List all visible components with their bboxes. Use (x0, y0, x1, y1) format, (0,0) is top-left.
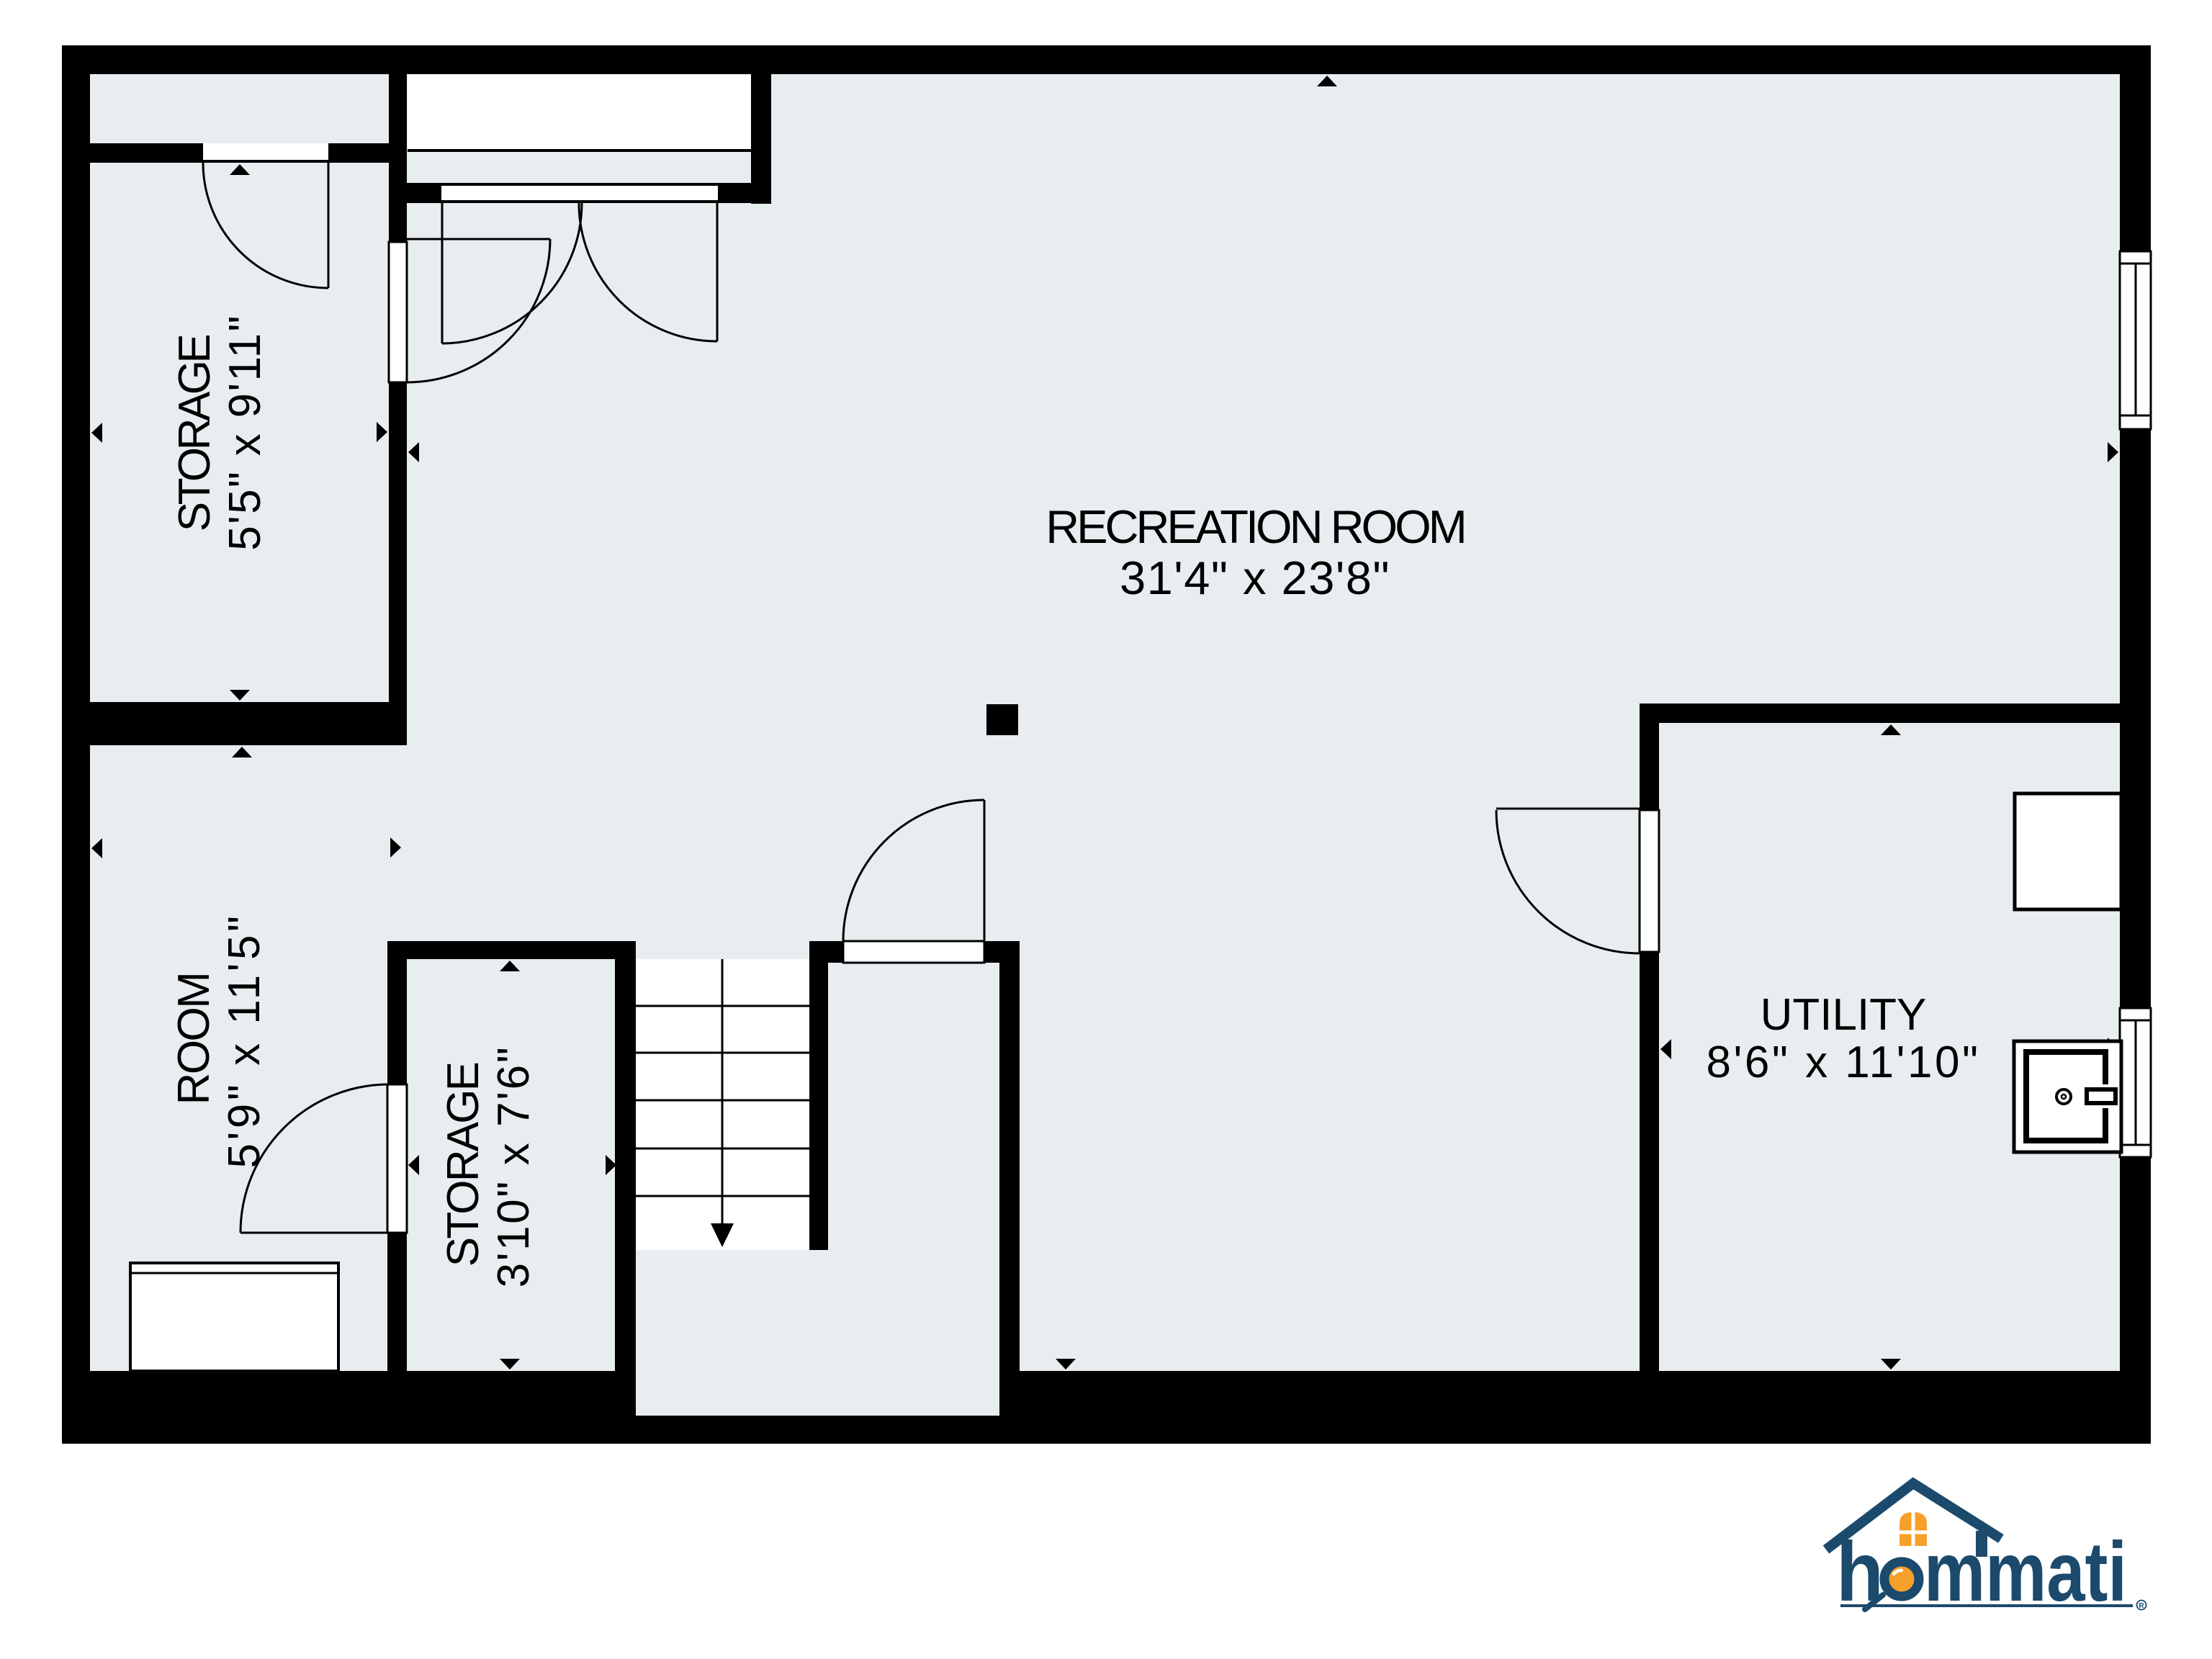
svg-text:5'5" x 9'11": 5'5" x 9'11" (220, 314, 270, 551)
svg-text:RECREATION ROOM: RECREATION ROOM (1046, 500, 1465, 553)
svg-text:8'6" x 11'10": 8'6" x 11'10" (1707, 1038, 1981, 1087)
svg-text:STORAGE: STORAGE (170, 336, 220, 532)
svg-text:UTILITY: UTILITY (1761, 990, 1927, 1040)
svg-text:3'10" x 7'6": 3'10" x 7'6" (489, 1046, 539, 1288)
svg-text:ROOM: ROOM (169, 974, 219, 1105)
svg-text:R: R (2139, 1602, 2144, 1610)
svg-text:31'4" x 23'8": 31'4" x 23'8" (1120, 552, 1390, 604)
svg-text:STORAGE: STORAGE (439, 1063, 488, 1267)
svg-text:5'9" x 11'5": 5'9" x 11'5" (220, 913, 269, 1169)
